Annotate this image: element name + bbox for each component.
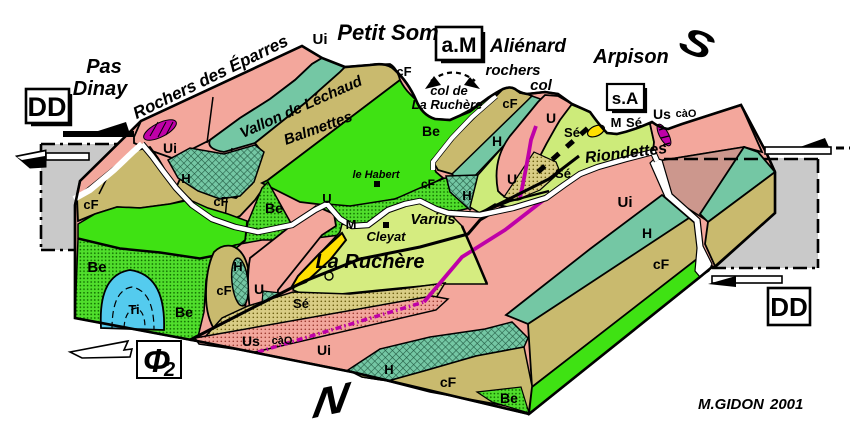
svg-text:Sé: Sé xyxy=(555,166,571,181)
svg-text:s.A: s.A xyxy=(612,89,638,108)
svg-text:cF: cF xyxy=(653,256,670,272)
svg-text:2001: 2001 xyxy=(769,396,803,413)
svg-text:H: H xyxy=(462,188,471,203)
svg-text:Ui: Ui xyxy=(618,194,633,211)
svg-text:cF: cF xyxy=(421,177,435,191)
svg-text:Be: Be xyxy=(87,259,106,276)
svg-text:M.GIDON: M.GIDON xyxy=(698,396,765,413)
svg-text:La Ruchère: La Ruchère xyxy=(412,97,483,112)
svg-text:cF: cF xyxy=(213,194,228,209)
svg-text:càO: càO xyxy=(676,108,697,120)
svg-text:cF: cF xyxy=(83,197,98,212)
svg-text:Varius: Varius xyxy=(410,211,455,228)
svg-text:càO: càO xyxy=(272,335,293,347)
svg-text:DD: DD xyxy=(770,292,808,322)
svg-text:Be: Be xyxy=(175,304,193,320)
svg-text:Us: Us xyxy=(653,106,671,122)
svg-text:col de: col de xyxy=(430,83,468,98)
svg-text:DD: DD xyxy=(28,92,67,122)
svg-text:Ui: Ui xyxy=(313,31,328,48)
svg-text:Be: Be xyxy=(265,200,283,216)
svg-text:Pas: Pas xyxy=(86,56,122,78)
svg-text:H: H xyxy=(642,225,652,241)
svg-text:col: col xyxy=(530,77,553,94)
svg-text:Petit Som: Petit Som xyxy=(337,20,438,45)
svg-text:Dinay: Dinay xyxy=(73,78,128,100)
svg-text:H: H xyxy=(492,133,502,149)
svg-text:Be: Be xyxy=(500,390,518,406)
svg-text:La Ruchère: La Ruchère xyxy=(316,251,425,273)
svg-text:Aliénard: Aliénard xyxy=(489,36,566,57)
svg-text:Cleyat: Cleyat xyxy=(366,229,406,244)
svg-text:H: H xyxy=(384,362,393,377)
svg-text:cF: cF xyxy=(440,374,457,390)
svg-text:Ui: Ui xyxy=(163,140,177,156)
svg-text:Sé: Sé xyxy=(293,296,309,311)
svg-text:a.M: a.M xyxy=(441,34,476,57)
svg-text:U: U xyxy=(507,171,517,187)
svg-text:U: U xyxy=(546,110,556,126)
svg-text:Sé: Sé xyxy=(626,115,642,130)
svg-text:Arpison: Arpison xyxy=(592,46,669,68)
svg-text:Sé: Sé xyxy=(564,125,580,140)
svg-text:H: H xyxy=(181,171,190,186)
svg-text:cF: cF xyxy=(502,96,517,111)
svg-text:H: H xyxy=(233,259,242,274)
svg-text:cF: cF xyxy=(216,283,231,298)
svg-text:Ti: Ti xyxy=(128,302,139,317)
svg-text:U: U xyxy=(254,281,264,297)
svg-text:M: M xyxy=(611,115,622,130)
svg-text:Ui: Ui xyxy=(317,342,331,358)
svg-text:le Habert: le Habert xyxy=(352,169,400,181)
svg-text:M: M xyxy=(346,217,357,232)
svg-text:Be: Be xyxy=(422,123,440,139)
svg-text:U: U xyxy=(322,191,331,206)
svg-text:2: 2 xyxy=(163,359,175,381)
svg-text:cF: cF xyxy=(396,64,411,79)
svg-text:Us: Us xyxy=(242,333,260,349)
